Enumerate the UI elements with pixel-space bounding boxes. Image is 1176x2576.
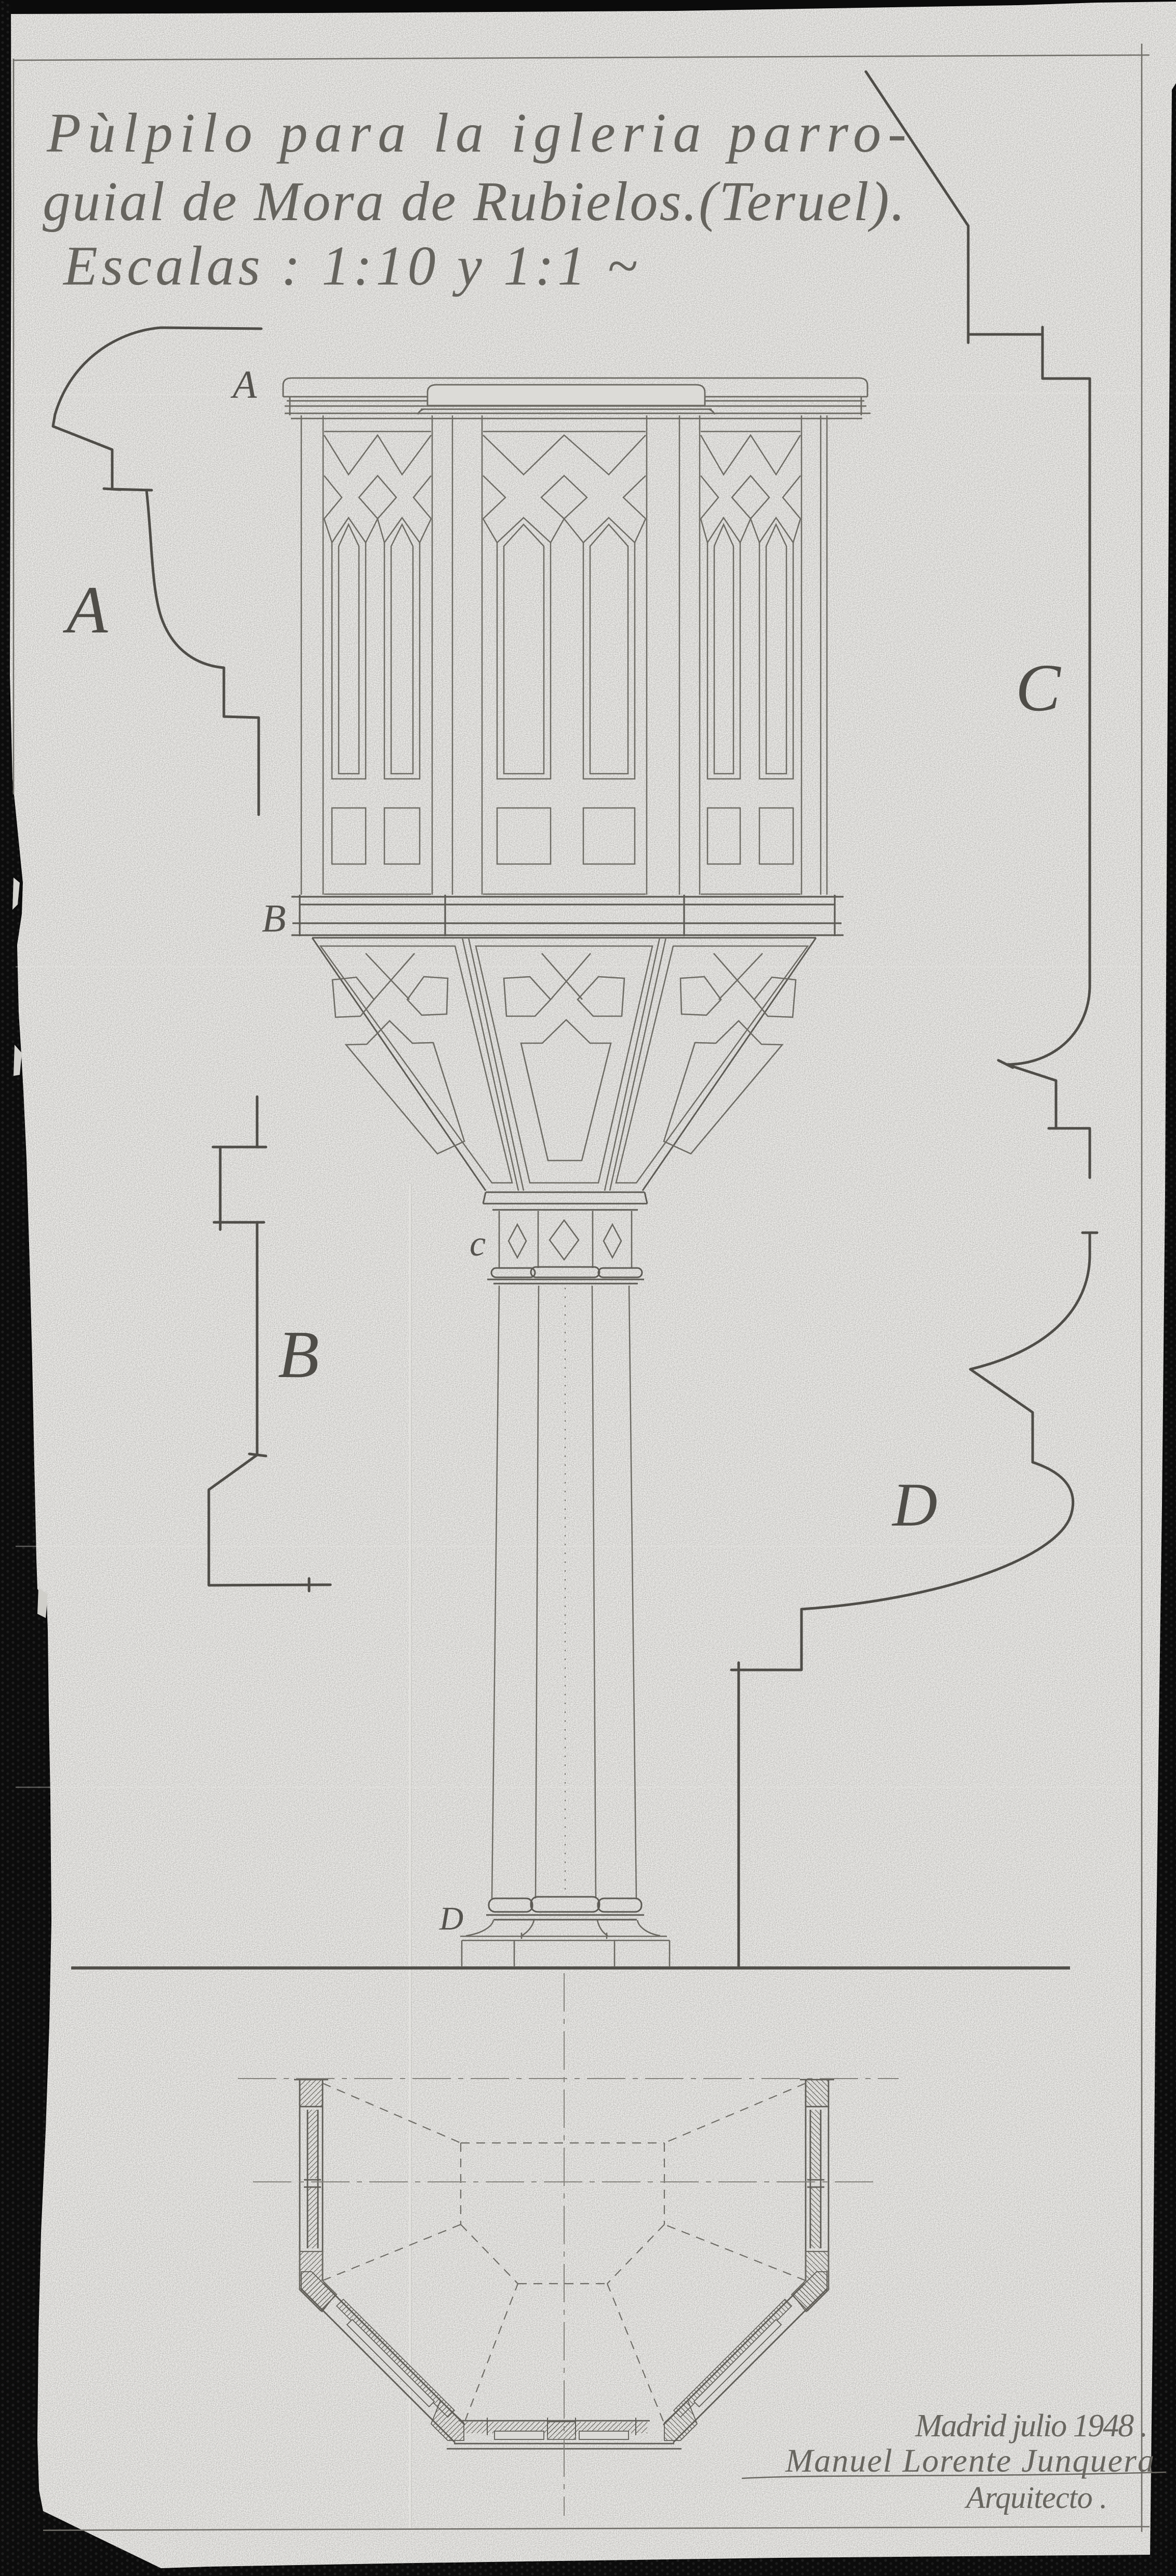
- svg-text:B: B: [278, 1317, 319, 1392]
- svg-text:Madrid julio 1948 .: Madrid julio 1948 .: [915, 2408, 1148, 2444]
- svg-text:c: c: [470, 1224, 486, 1264]
- svg-text:Arquitecto .: Arquitecto .: [964, 2480, 1107, 2515]
- svg-text:D: D: [439, 1900, 463, 1937]
- svg-text:A: A: [62, 573, 108, 648]
- svg-text:B: B: [262, 897, 286, 940]
- svg-text:A: A: [230, 363, 257, 407]
- svg-text:guial de Mora de Rubielos.(Ter: guial de Mora de Rubielos.(Teruel).: [43, 171, 905, 233]
- svg-text:D: D: [891, 1470, 938, 1539]
- svg-text:C: C: [1015, 651, 1061, 725]
